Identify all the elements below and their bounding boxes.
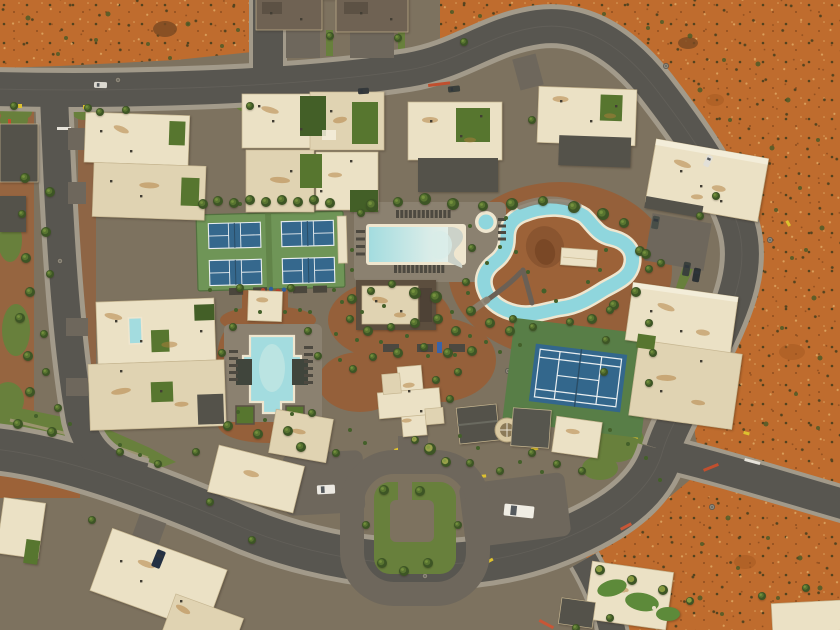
bush xyxy=(485,261,489,265)
desert-shrub xyxy=(766,536,770,540)
tree xyxy=(602,336,610,344)
pickleball-court xyxy=(208,222,261,248)
tree xyxy=(245,195,255,205)
tree xyxy=(377,558,387,568)
desert-shrub xyxy=(736,566,740,570)
manhole xyxy=(115,77,120,82)
lounge-chair xyxy=(304,353,313,356)
lounge-chair xyxy=(396,210,399,218)
roof-vent xyxy=(200,330,202,332)
tree xyxy=(432,376,440,384)
roof-vent xyxy=(360,12,362,14)
bush xyxy=(466,291,470,295)
bush xyxy=(340,300,344,304)
lounge-chair xyxy=(229,371,238,374)
tree xyxy=(325,198,335,208)
tree xyxy=(357,209,365,217)
tree xyxy=(627,575,637,585)
lounge-chair xyxy=(356,238,365,241)
bush xyxy=(468,224,472,228)
tree xyxy=(430,291,442,303)
lounge-chair xyxy=(424,265,427,273)
tree xyxy=(293,197,303,207)
roof-vent xyxy=(650,310,652,312)
bush xyxy=(382,304,386,308)
tree xyxy=(21,253,31,263)
lounge-chair xyxy=(498,225,506,228)
lounge-chair xyxy=(422,210,425,218)
bush xyxy=(468,334,472,338)
bush xyxy=(498,245,502,249)
desert-shrub xyxy=(56,52,60,56)
tree xyxy=(308,409,316,417)
bush xyxy=(608,428,612,432)
bush xyxy=(234,308,238,312)
roof-vent xyxy=(140,580,142,582)
pavilion xyxy=(247,290,282,321)
tree xyxy=(466,306,476,316)
bush xyxy=(138,453,142,457)
tree xyxy=(393,348,403,358)
bush xyxy=(118,443,122,447)
bush xyxy=(350,268,354,272)
tree xyxy=(529,323,537,331)
tree xyxy=(657,259,665,267)
tree xyxy=(314,352,322,360)
pickleball-court xyxy=(282,257,335,283)
lounge-chair xyxy=(498,231,506,234)
bush xyxy=(298,308,302,312)
tree xyxy=(411,436,419,444)
desert-shrub xyxy=(106,12,111,17)
tree xyxy=(441,457,451,467)
tree xyxy=(645,379,653,387)
lounge-chair xyxy=(426,210,429,218)
bush xyxy=(236,410,240,414)
tree xyxy=(349,365,357,373)
tree xyxy=(346,315,354,323)
roof-vent xyxy=(160,390,162,392)
desert-shrub xyxy=(818,586,823,591)
tree xyxy=(347,294,357,304)
desert-shrub xyxy=(812,296,817,301)
lounge-chair xyxy=(411,265,414,273)
tree xyxy=(696,212,704,220)
roof-vent xyxy=(615,105,617,107)
tree xyxy=(332,449,340,457)
desert-shrub xyxy=(602,12,606,16)
tree xyxy=(686,597,694,605)
lounge-chair xyxy=(435,210,438,218)
lounge-chair xyxy=(441,265,444,273)
tree xyxy=(506,198,518,210)
tree xyxy=(419,193,431,205)
bush xyxy=(458,434,462,438)
tree xyxy=(394,34,402,42)
desert-shrub xyxy=(816,426,820,430)
desert-shrub xyxy=(186,22,191,27)
roof-vent xyxy=(320,190,322,192)
tree xyxy=(246,102,254,110)
lounge-chair xyxy=(304,360,313,363)
tree xyxy=(802,584,810,592)
tree xyxy=(42,368,50,376)
tree xyxy=(597,208,609,220)
tree xyxy=(363,326,373,336)
tree xyxy=(229,198,239,208)
bush xyxy=(290,412,294,416)
lounge-chair xyxy=(394,265,397,273)
desert-shrub xyxy=(818,356,823,361)
desert-shrub xyxy=(146,42,150,46)
desert-shrub xyxy=(236,28,240,32)
bush xyxy=(554,299,558,303)
lounge-chair xyxy=(416,265,419,273)
bush xyxy=(484,340,488,344)
tree xyxy=(462,278,470,286)
tree xyxy=(409,287,421,299)
building-cluster-w xyxy=(82,112,208,220)
desert-shrub xyxy=(776,596,780,600)
pergola xyxy=(236,406,254,424)
roof-vent xyxy=(120,560,122,562)
tree xyxy=(420,343,428,351)
bush xyxy=(476,446,480,450)
roof-vent xyxy=(300,18,302,20)
tree xyxy=(468,244,476,252)
tree xyxy=(606,614,614,622)
bush xyxy=(540,470,544,474)
pool-house xyxy=(356,280,436,330)
roof-vent xyxy=(258,105,260,107)
bush xyxy=(450,310,454,314)
lounge-chair xyxy=(407,265,410,273)
bush xyxy=(68,422,72,426)
tree xyxy=(213,196,223,206)
tree xyxy=(25,387,35,397)
roof-vent xyxy=(680,170,682,172)
tree xyxy=(25,287,35,297)
tree xyxy=(13,419,23,429)
tree xyxy=(553,460,561,468)
desert-shrub xyxy=(774,208,778,212)
clubhouse-west xyxy=(86,298,226,431)
spa xyxy=(479,215,494,230)
building-dark-1 xyxy=(456,404,500,444)
tree xyxy=(443,348,453,358)
tree xyxy=(154,460,162,468)
roof-vent xyxy=(590,120,592,122)
tree xyxy=(433,314,443,324)
lounge-chair xyxy=(400,210,403,218)
road-marking xyxy=(18,104,22,108)
roof-vent xyxy=(140,340,142,342)
lounge-chair xyxy=(356,230,365,233)
lounge-chair xyxy=(304,346,313,349)
tree xyxy=(466,459,474,467)
building-loop-west xyxy=(269,409,334,462)
building-se-corner xyxy=(771,600,840,630)
lounge-chair xyxy=(443,210,446,218)
manhole xyxy=(709,504,714,509)
lounge-chair xyxy=(229,378,238,381)
car xyxy=(448,85,461,92)
bush xyxy=(258,310,262,314)
bush xyxy=(658,478,662,482)
tree xyxy=(96,108,104,116)
desert-shrub xyxy=(698,596,703,601)
bush xyxy=(208,288,212,292)
building-cluster-n xyxy=(408,102,502,192)
bush xyxy=(355,338,359,342)
tree xyxy=(379,485,389,495)
building-dark-s xyxy=(558,598,595,628)
roof-vent xyxy=(110,180,112,182)
desert-shrub xyxy=(816,138,820,142)
tree xyxy=(253,429,263,439)
bush xyxy=(405,334,409,338)
roof-vent xyxy=(100,130,102,132)
desert-shrub xyxy=(726,516,731,521)
roof-vent xyxy=(390,18,392,20)
roof-vent xyxy=(460,135,462,137)
desert-shrub xyxy=(780,326,784,330)
roof-vent xyxy=(400,310,402,312)
tree xyxy=(248,536,256,544)
desert-shrub xyxy=(220,44,224,48)
lounge-chair xyxy=(439,210,442,218)
roof-vent xyxy=(115,320,117,322)
tree xyxy=(296,442,306,452)
lounge-chair xyxy=(420,265,423,273)
tree xyxy=(496,467,504,475)
lounge-chair xyxy=(437,265,440,273)
tree xyxy=(454,521,462,529)
tree xyxy=(88,516,96,524)
shade-structure xyxy=(236,359,252,385)
desert-shrub xyxy=(786,98,791,103)
roof-vent xyxy=(420,410,422,412)
tree xyxy=(451,326,461,336)
roof-vent xyxy=(130,150,132,152)
lounge-chair xyxy=(448,210,451,218)
bush xyxy=(518,343,522,347)
tree xyxy=(218,349,226,357)
tree xyxy=(578,467,586,475)
tree xyxy=(538,196,548,206)
building-left-edge xyxy=(0,124,38,182)
desert-shrub xyxy=(722,58,726,62)
bush xyxy=(348,428,352,432)
tree xyxy=(509,315,517,323)
tree xyxy=(424,443,436,455)
desert-shrub xyxy=(720,612,724,616)
tree xyxy=(423,558,433,568)
desert-shrub xyxy=(794,392,798,396)
roof-vent xyxy=(700,360,702,362)
tree xyxy=(192,448,200,456)
desert-shrub xyxy=(698,88,703,93)
tree xyxy=(505,326,515,336)
desert-shrub xyxy=(770,146,775,151)
bush xyxy=(526,270,530,274)
tree xyxy=(447,198,459,210)
bush xyxy=(598,268,602,272)
desert-shrub xyxy=(64,36,68,40)
bush xyxy=(644,456,648,460)
bush xyxy=(360,310,364,314)
lounge-chair xyxy=(229,357,238,360)
pickleball-complex xyxy=(196,211,348,296)
tree xyxy=(23,351,33,361)
tree xyxy=(631,287,641,297)
tree xyxy=(40,330,48,338)
tree xyxy=(198,199,208,209)
tree xyxy=(393,197,403,207)
roof-vent xyxy=(140,195,142,197)
tree xyxy=(283,426,293,436)
tree xyxy=(528,449,536,457)
roof-vent xyxy=(180,600,182,602)
tree xyxy=(277,195,287,205)
bush xyxy=(504,216,508,220)
tree xyxy=(568,201,580,213)
tree xyxy=(54,404,62,412)
tree xyxy=(600,368,608,376)
tree xyxy=(45,187,55,197)
bush xyxy=(586,280,590,284)
tree xyxy=(399,566,409,576)
roof-vent xyxy=(270,12,272,14)
lounge-chair xyxy=(403,265,406,273)
desert-shrub xyxy=(688,34,693,39)
pavilion-se xyxy=(552,416,603,458)
tree xyxy=(116,448,124,456)
tree xyxy=(658,585,668,595)
lounge-chair xyxy=(418,210,421,218)
tree xyxy=(619,218,629,228)
tree xyxy=(528,116,536,124)
tree xyxy=(122,106,130,114)
aerial-photo xyxy=(0,0,840,630)
tree xyxy=(388,280,396,288)
desert-shrub xyxy=(798,556,803,561)
desert-shrub xyxy=(94,38,98,42)
desert-shrub xyxy=(700,542,704,546)
car xyxy=(358,88,369,95)
building-dark-2 xyxy=(511,408,552,449)
bush xyxy=(426,354,430,358)
desert-shrub xyxy=(790,256,794,260)
roof-vent xyxy=(120,370,122,372)
tree xyxy=(326,32,334,40)
lounge-chair xyxy=(356,253,365,256)
lounge-chair xyxy=(428,265,431,273)
lounge-chair xyxy=(413,210,416,218)
tree xyxy=(84,104,92,112)
tree xyxy=(47,427,57,437)
pickleball-court xyxy=(209,259,262,285)
pickleball-court xyxy=(281,220,334,246)
tree xyxy=(261,197,271,207)
lounge-chair xyxy=(304,367,313,370)
tree xyxy=(410,318,420,328)
tree xyxy=(595,565,605,575)
tree xyxy=(41,227,51,237)
tree xyxy=(46,270,54,278)
tree xyxy=(566,318,574,326)
car xyxy=(94,82,107,88)
desert-shrub xyxy=(478,14,482,18)
tree xyxy=(10,102,18,110)
desert-shrub xyxy=(764,422,769,427)
lounge-chair xyxy=(433,265,436,273)
roof-vent xyxy=(300,128,302,130)
tree xyxy=(467,346,477,356)
tree xyxy=(387,323,395,331)
tree xyxy=(758,592,766,600)
roof-vent xyxy=(660,390,662,392)
desert-shrub xyxy=(728,118,732,122)
tree xyxy=(454,368,462,376)
desert-shrub xyxy=(798,186,802,190)
bush xyxy=(263,418,267,422)
bush xyxy=(350,248,354,252)
roof-vent xyxy=(480,115,482,117)
bush xyxy=(542,289,547,294)
roof-vent xyxy=(350,160,352,162)
lounge-chair xyxy=(398,265,401,273)
tree xyxy=(587,314,597,324)
lounge-chair xyxy=(356,245,365,248)
manhole xyxy=(663,63,668,68)
tree xyxy=(369,353,377,361)
manhole xyxy=(767,237,772,242)
manhole xyxy=(57,258,62,263)
roof-vent xyxy=(290,170,292,172)
bush xyxy=(514,250,518,254)
bush xyxy=(363,441,367,445)
desert-shrub xyxy=(660,20,664,24)
manhole xyxy=(422,573,427,578)
tree xyxy=(485,318,495,328)
desert-shrub xyxy=(820,226,825,231)
tree xyxy=(606,306,614,314)
roof-vent xyxy=(272,120,274,122)
lounge-chair xyxy=(229,350,238,353)
building-cluster-nw xyxy=(242,92,384,212)
roof-vent xyxy=(560,100,562,102)
tree xyxy=(478,201,488,211)
tree xyxy=(649,349,657,357)
roof-vent xyxy=(375,300,377,302)
desert-shrub xyxy=(756,62,761,67)
lounge-chair xyxy=(409,210,412,218)
tree xyxy=(645,265,653,273)
tree xyxy=(223,421,233,431)
roof-vent xyxy=(720,200,722,202)
bush xyxy=(626,442,630,446)
lounge-chair xyxy=(405,210,408,218)
tree xyxy=(309,195,319,205)
bush xyxy=(334,332,338,336)
desert-shrub xyxy=(168,56,172,60)
bush xyxy=(453,353,457,357)
tree xyxy=(366,199,378,211)
tree xyxy=(712,192,720,200)
lounge-chair xyxy=(498,238,506,241)
roof-vent xyxy=(330,110,332,112)
